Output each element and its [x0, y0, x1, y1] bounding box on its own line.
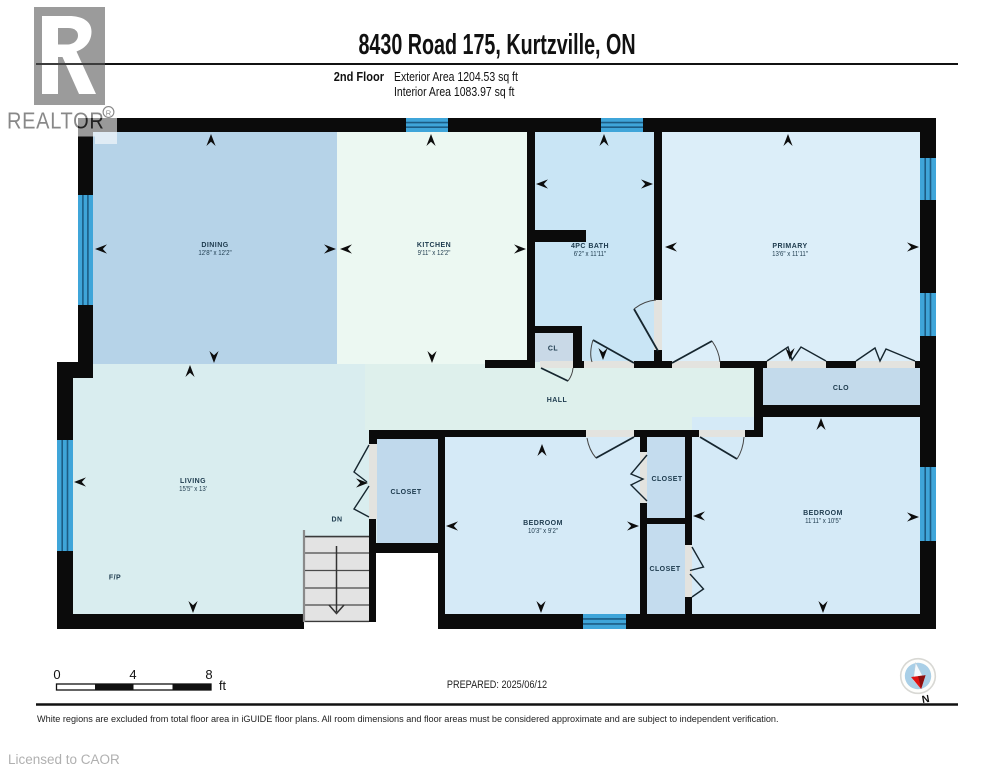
- svg-text:F/P: F/P: [109, 575, 121, 582]
- svg-text:13'6" x 11'11": 13'6" x 11'11": [772, 251, 808, 258]
- svg-text:BEDROOM: BEDROOM: [803, 510, 843, 517]
- svg-text:Licensed to CAOR: Licensed to CAOR: [8, 752, 120, 767]
- svg-text:KITCHEN: KITCHEN: [417, 242, 451, 249]
- svg-text:CLOSET: CLOSET: [651, 476, 682, 483]
- svg-text:4PC BATH: 4PC BATH: [571, 243, 609, 250]
- svg-text:REALTOR: REALTOR: [7, 107, 104, 134]
- svg-text:2nd Floor: 2nd Floor: [334, 69, 385, 84]
- svg-text:CLOSET: CLOSET: [649, 566, 680, 573]
- svg-text:Interior Area 1083.97 sq ft: Interior Area 1083.97 sq ft: [394, 84, 515, 99]
- svg-text:0: 0: [53, 667, 60, 682]
- svg-text:9'11" x 12'2": 9'11" x 12'2": [418, 250, 452, 257]
- svg-text:6'2" x 11'11": 6'2" x 11'11": [574, 251, 607, 258]
- svg-text:DN: DN: [331, 517, 342, 524]
- svg-text:ft: ft: [219, 679, 226, 693]
- svg-text:11'11" x 10'5": 11'11" x 10'5": [805, 518, 841, 525]
- svg-text:LIVING: LIVING: [180, 478, 206, 485]
- svg-text:12'8" x 12'2": 12'8" x 12'2": [198, 250, 232, 257]
- svg-text:10'3" x 9'2": 10'3" x 9'2": [528, 528, 559, 535]
- svg-text:DINING: DINING: [201, 242, 228, 249]
- svg-text:CLO: CLO: [833, 385, 849, 392]
- svg-text:PREPARED: 2025/06/12: PREPARED: 2025/06/12: [447, 679, 548, 691]
- svg-text:HALL: HALL: [547, 397, 568, 404]
- svg-text:4: 4: [129, 667, 136, 682]
- svg-text:Exterior Area 1204.53 sq ft: Exterior Area 1204.53 sq ft: [394, 69, 519, 84]
- svg-text:8: 8: [205, 667, 212, 682]
- svg-text:15'5" x 13': 15'5" x 13': [179, 486, 207, 493]
- svg-text:White regions are excluded fro: White regions are excluded from total fl…: [37, 714, 779, 724]
- svg-text:R: R: [106, 108, 112, 117]
- svg-text:CLOSET: CLOSET: [390, 489, 421, 496]
- svg-text:PRIMARY: PRIMARY: [772, 243, 807, 250]
- svg-text:8430 Road 175, Kurtzville, ON: 8430 Road 175, Kurtzville, ON: [358, 29, 635, 61]
- svg-text:BEDROOM: BEDROOM: [523, 520, 563, 527]
- svg-text:CL: CL: [548, 346, 559, 353]
